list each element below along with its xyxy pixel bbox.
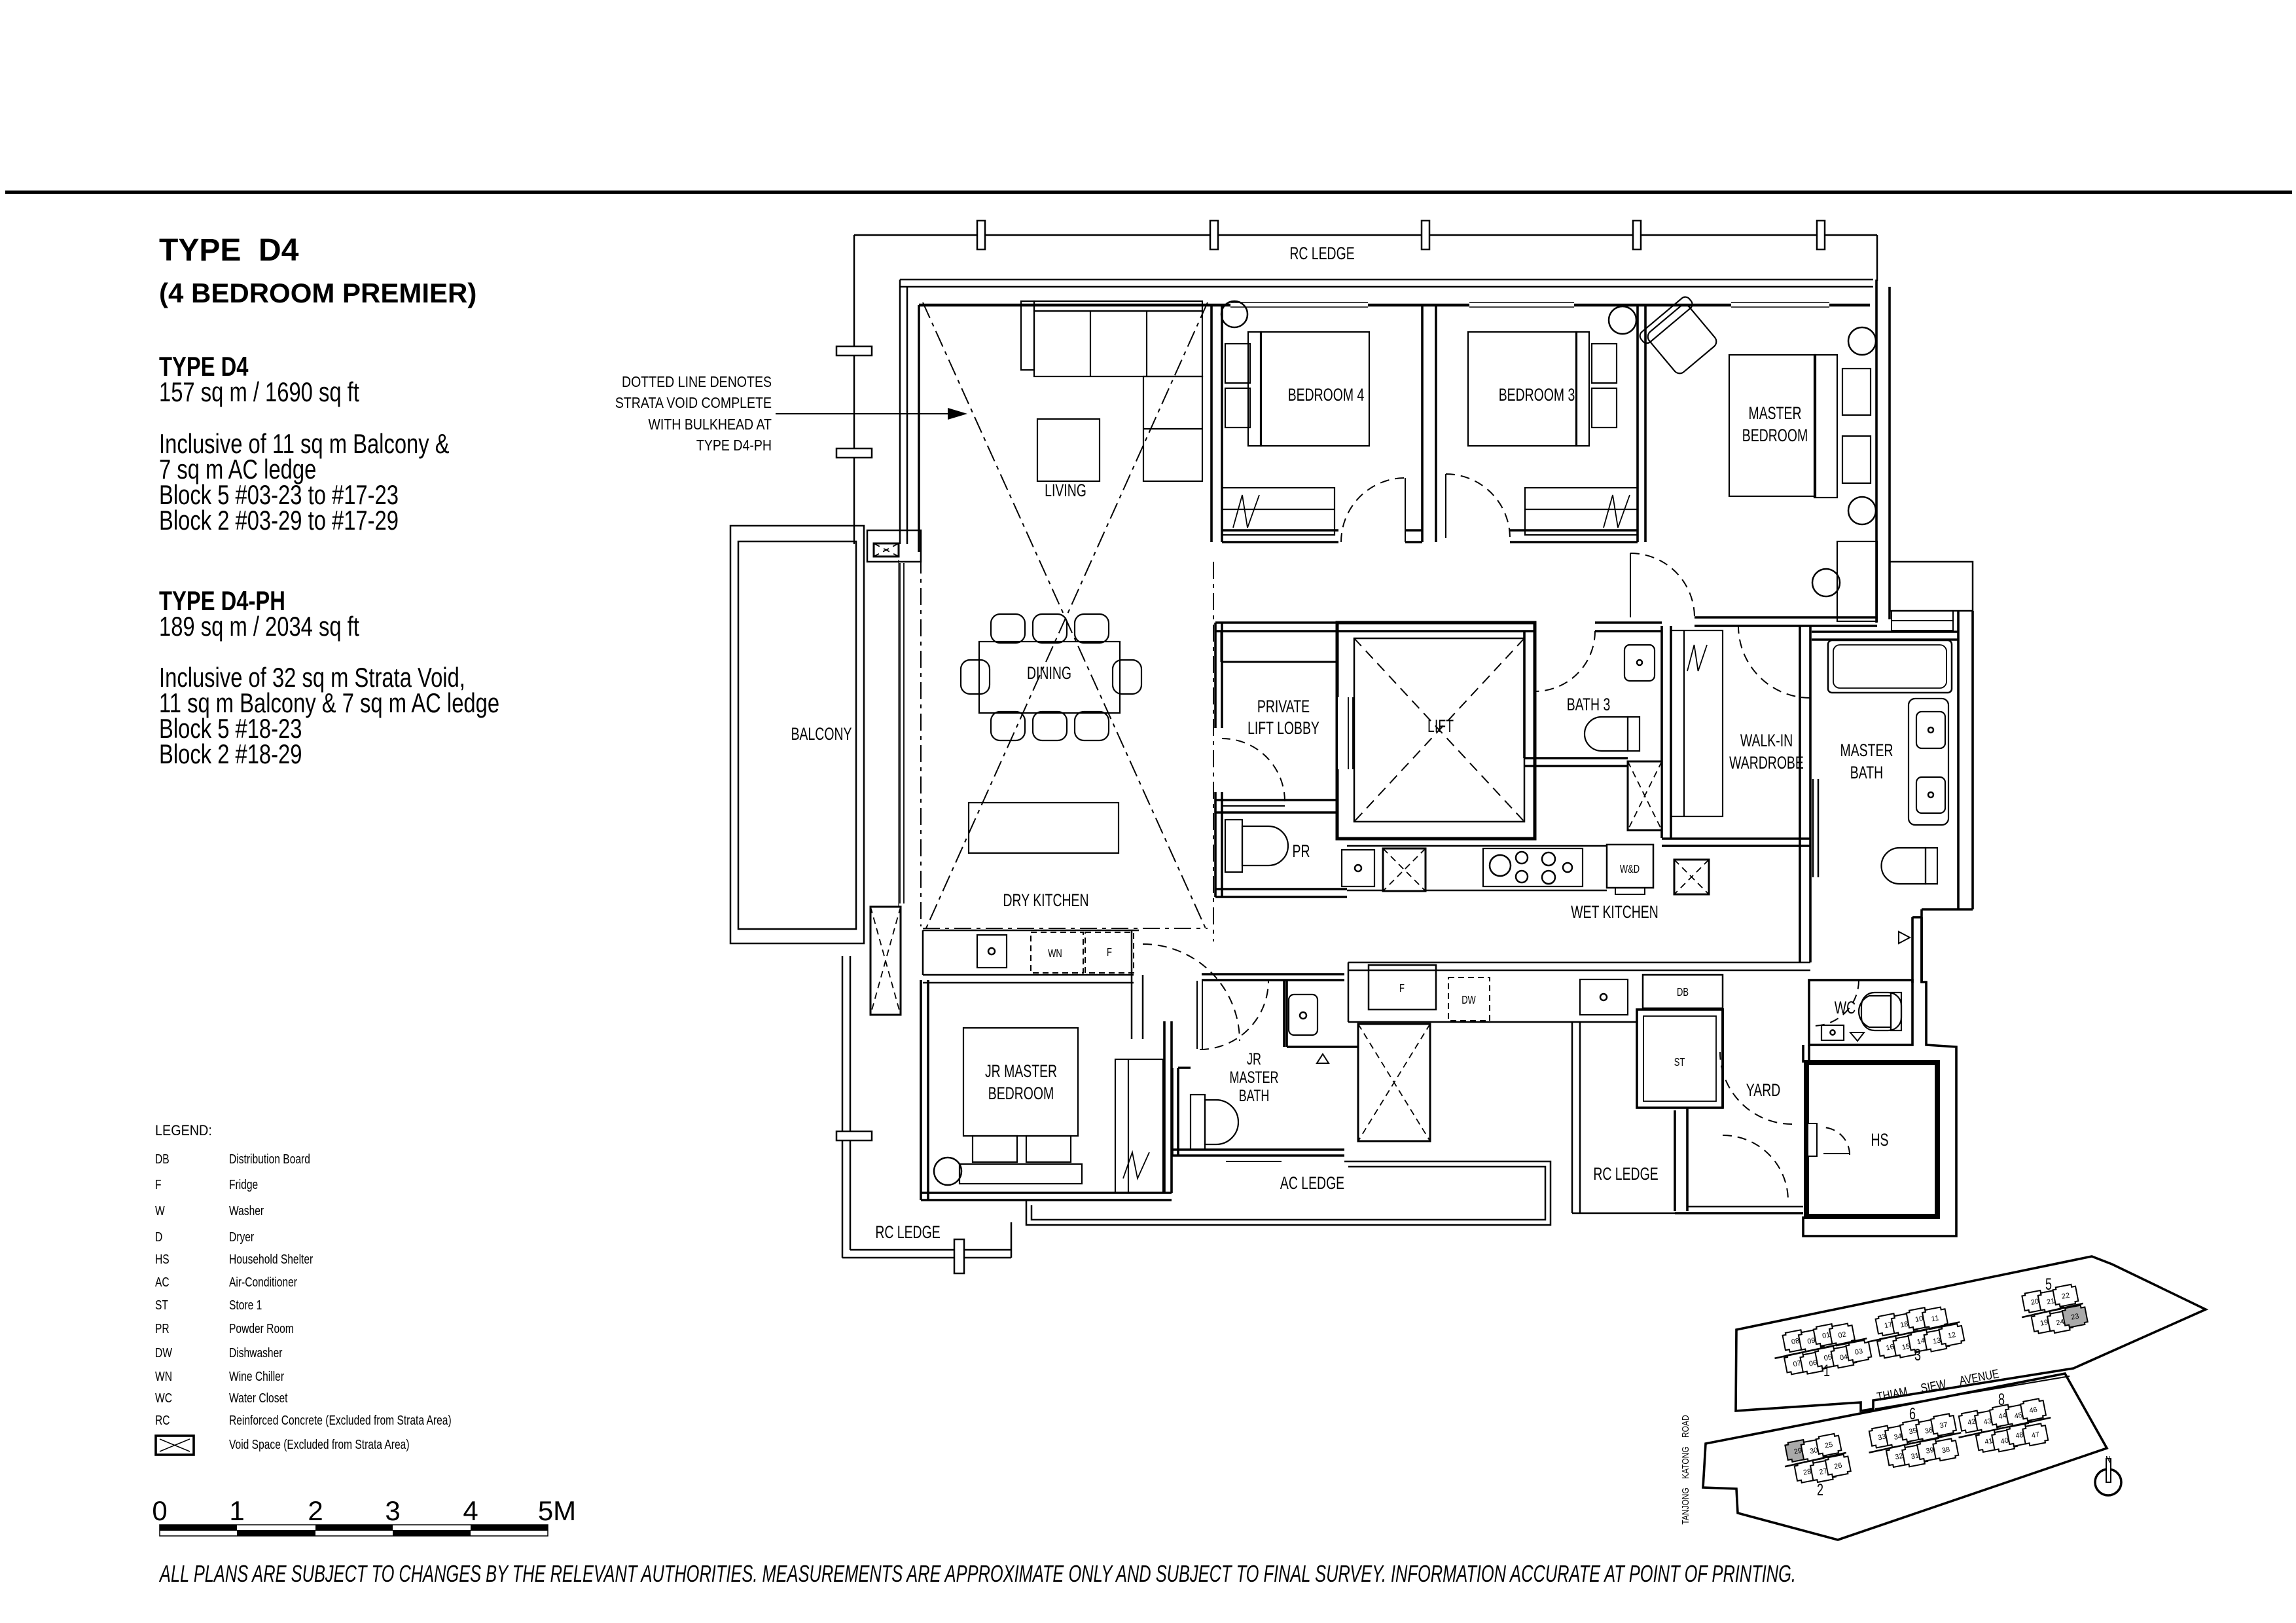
svg-text:Air-Conditioner: Air-Conditioner [229, 1275, 297, 1289]
svg-text:Household Shelter: Household Shelter [229, 1252, 313, 1266]
svg-text:BEDROOM 3: BEDROOM 3 [1499, 385, 1575, 405]
svg-text:Distribution Board: Distribution Board [229, 1152, 310, 1166]
svg-text:Block 2 #18-29: Block 2 #18-29 [159, 739, 302, 769]
svg-text:DB: DB [1677, 986, 1689, 999]
svg-text:BEDROOM 4: BEDROOM 4 [1288, 385, 1365, 405]
svg-text:12: 12 [1947, 1331, 1956, 1340]
svg-text:LIFT: LIFT [1427, 716, 1454, 736]
svg-text:02: 02 [1838, 1330, 1847, 1340]
svg-text:JR: JR [1247, 1049, 1261, 1068]
svg-text:Wine Chiller: Wine Chiller [229, 1369, 284, 1383]
svg-text:AC LEDGE: AC LEDGE [1280, 1173, 1344, 1193]
svg-text:JR MASTER: JR MASTER [985, 1061, 1057, 1081]
svg-text:RC LEDGE: RC LEDGE [875, 1222, 940, 1242]
svg-text:2: 2 [1817, 1480, 1823, 1499]
svg-text:PR: PR [1293, 841, 1310, 861]
svg-text:LIFT LOBBY: LIFT LOBBY [1247, 718, 1319, 738]
svg-text:23: 23 [2070, 1313, 2079, 1322]
svg-text:PR: PR [155, 1321, 170, 1336]
svg-text:4: 4 [463, 1495, 478, 1526]
svg-text:DINING: DINING [1027, 663, 1071, 683]
svg-text:DW: DW [1462, 994, 1476, 1007]
svg-text:37: 37 [1939, 1421, 1948, 1430]
svg-text:LEGEND:: LEGEND: [155, 1123, 212, 1139]
svg-text:TANJONG KATONG ROAD: TANJONG KATONG ROAD [1680, 1415, 1691, 1524]
svg-text:189 sq m / 2034 sq ft: 189 sq m / 2034 sq ft [159, 611, 359, 642]
svg-text:25: 25 [1824, 1441, 1833, 1450]
svg-text:BEDROOM: BEDROOM [1742, 426, 1808, 445]
svg-text:DW: DW [155, 1345, 172, 1360]
svg-text:HS: HS [155, 1252, 170, 1266]
svg-text:WARDROBE: WARDROBE [1729, 753, 1804, 773]
svg-text:1: 1 [1823, 1361, 1830, 1380]
svg-text:3: 3 [1914, 1345, 1921, 1364]
svg-text:F: F [1399, 982, 1405, 995]
svg-text:DRY KITCHEN: DRY KITCHEN [1003, 890, 1088, 910]
svg-text:YARD: YARD [1746, 1080, 1781, 1100]
svg-text:Store 1: Store 1 [229, 1298, 262, 1312]
svg-text:26: 26 [1833, 1462, 1842, 1471]
svg-text:ALL PLANS ARE SUBJECT TO CHANG: ALL PLANS ARE SUBJECT TO CHANGES BY THE … [159, 1560, 1796, 1587]
svg-text:Void Space (Excluded from Stra: Void Space (Excluded from Strata Area) [229, 1437, 410, 1451]
svg-text:Powder Room: Powder Room [229, 1321, 294, 1336]
svg-text:BATH: BATH [1850, 763, 1883, 782]
svg-text:38: 38 [1941, 1446, 1950, 1455]
svg-text:W: W [155, 1203, 165, 1218]
svg-text:Dishwasher: Dishwasher [229, 1345, 282, 1360]
svg-text:WN: WN [1048, 947, 1062, 960]
svg-text:F: F [1107, 946, 1112, 959]
svg-text:(4 BEDROOM PREMIER): (4 BEDROOM PREMIER) [159, 278, 476, 308]
svg-text:157 sq m / 1690 sq ft: 157 sq m / 1690 sq ft [159, 376, 359, 407]
svg-text:2: 2 [308, 1495, 323, 1526]
svg-text:TYPE D4-PH: TYPE D4-PH [696, 437, 772, 454]
svg-text:WITH BULKHEAD AT: WITH BULKHEAD AT [648, 416, 772, 433]
svg-text:Washer: Washer [229, 1203, 264, 1218]
svg-text:3: 3 [385, 1495, 400, 1526]
svg-text:MASTER: MASTER [1230, 1068, 1279, 1087]
svg-text:W&D: W&D [1620, 863, 1640, 876]
svg-text:N: N [2106, 1453, 2111, 1465]
svg-text:WALK-IN: WALK-IN [1740, 731, 1793, 750]
svg-text:22: 22 [2061, 1292, 2070, 1301]
svg-text:MASTER: MASTER [1840, 740, 1893, 760]
svg-text:BATH: BATH [1239, 1086, 1270, 1105]
svg-text:BEDROOM: BEDROOM [988, 1084, 1054, 1103]
svg-text:F: F [155, 1177, 162, 1192]
svg-text:Dryer: Dryer [229, 1230, 254, 1244]
svg-text:8: 8 [1998, 1390, 2005, 1409]
svg-text:Block 2 #03-29 to #17-29: Block 2 #03-29 to #17-29 [159, 505, 399, 536]
svg-text:RC LEDGE: RC LEDGE [1593, 1164, 1658, 1184]
svg-text:BATH 3: BATH 3 [1567, 695, 1611, 714]
svg-text:Fridge: Fridge [229, 1177, 258, 1192]
svg-text:MASTER: MASTER [1749, 403, 1802, 423]
svg-text:D: D [155, 1230, 162, 1244]
svg-text:HS: HS [1871, 1130, 1889, 1150]
svg-text:Reinforced Concrete (Excluded: Reinforced Concrete (Excluded from Strat… [229, 1413, 452, 1427]
svg-text:PRIVATE: PRIVATE [1257, 697, 1310, 716]
svg-text:TYPE D4: TYPE D4 [159, 233, 299, 268]
svg-text:5: 5 [2045, 1275, 2052, 1294]
svg-text:BALCONY: BALCONY [791, 724, 852, 744]
svg-text:0: 0 [152, 1495, 167, 1526]
svg-text:RC LEDGE: RC LEDGE [1289, 244, 1354, 263]
svg-text:6: 6 [1909, 1404, 1916, 1423]
svg-text:WC: WC [1835, 998, 1856, 1017]
svg-text:RC: RC [155, 1413, 170, 1427]
svg-text:11: 11 [1931, 1314, 1940, 1323]
svg-text:STRATA VOID COMPLETE: STRATA VOID COMPLETE [615, 395, 772, 412]
svg-text:46: 46 [2029, 1406, 2038, 1415]
svg-text:1: 1 [229, 1495, 244, 1526]
svg-text:ST: ST [1674, 1056, 1685, 1069]
svg-text:LIVING: LIVING [1045, 481, 1086, 500]
svg-text:Water Closet: Water Closet [229, 1391, 288, 1405]
svg-text:5M: 5M [538, 1495, 576, 1526]
svg-text:ST: ST [155, 1298, 168, 1312]
svg-text:DB: DB [155, 1152, 170, 1166]
svg-text:DOTTED LINE DENOTES: DOTTED LINE DENOTES [622, 374, 772, 391]
svg-text:WET KITCHEN: WET KITCHEN [1571, 902, 1659, 922]
svg-text:WN: WN [155, 1369, 172, 1383]
svg-text:WC: WC [155, 1391, 172, 1405]
svg-text:AC: AC [155, 1275, 170, 1289]
svg-text:47: 47 [2031, 1431, 2040, 1440]
svg-text:03: 03 [1854, 1347, 1863, 1357]
